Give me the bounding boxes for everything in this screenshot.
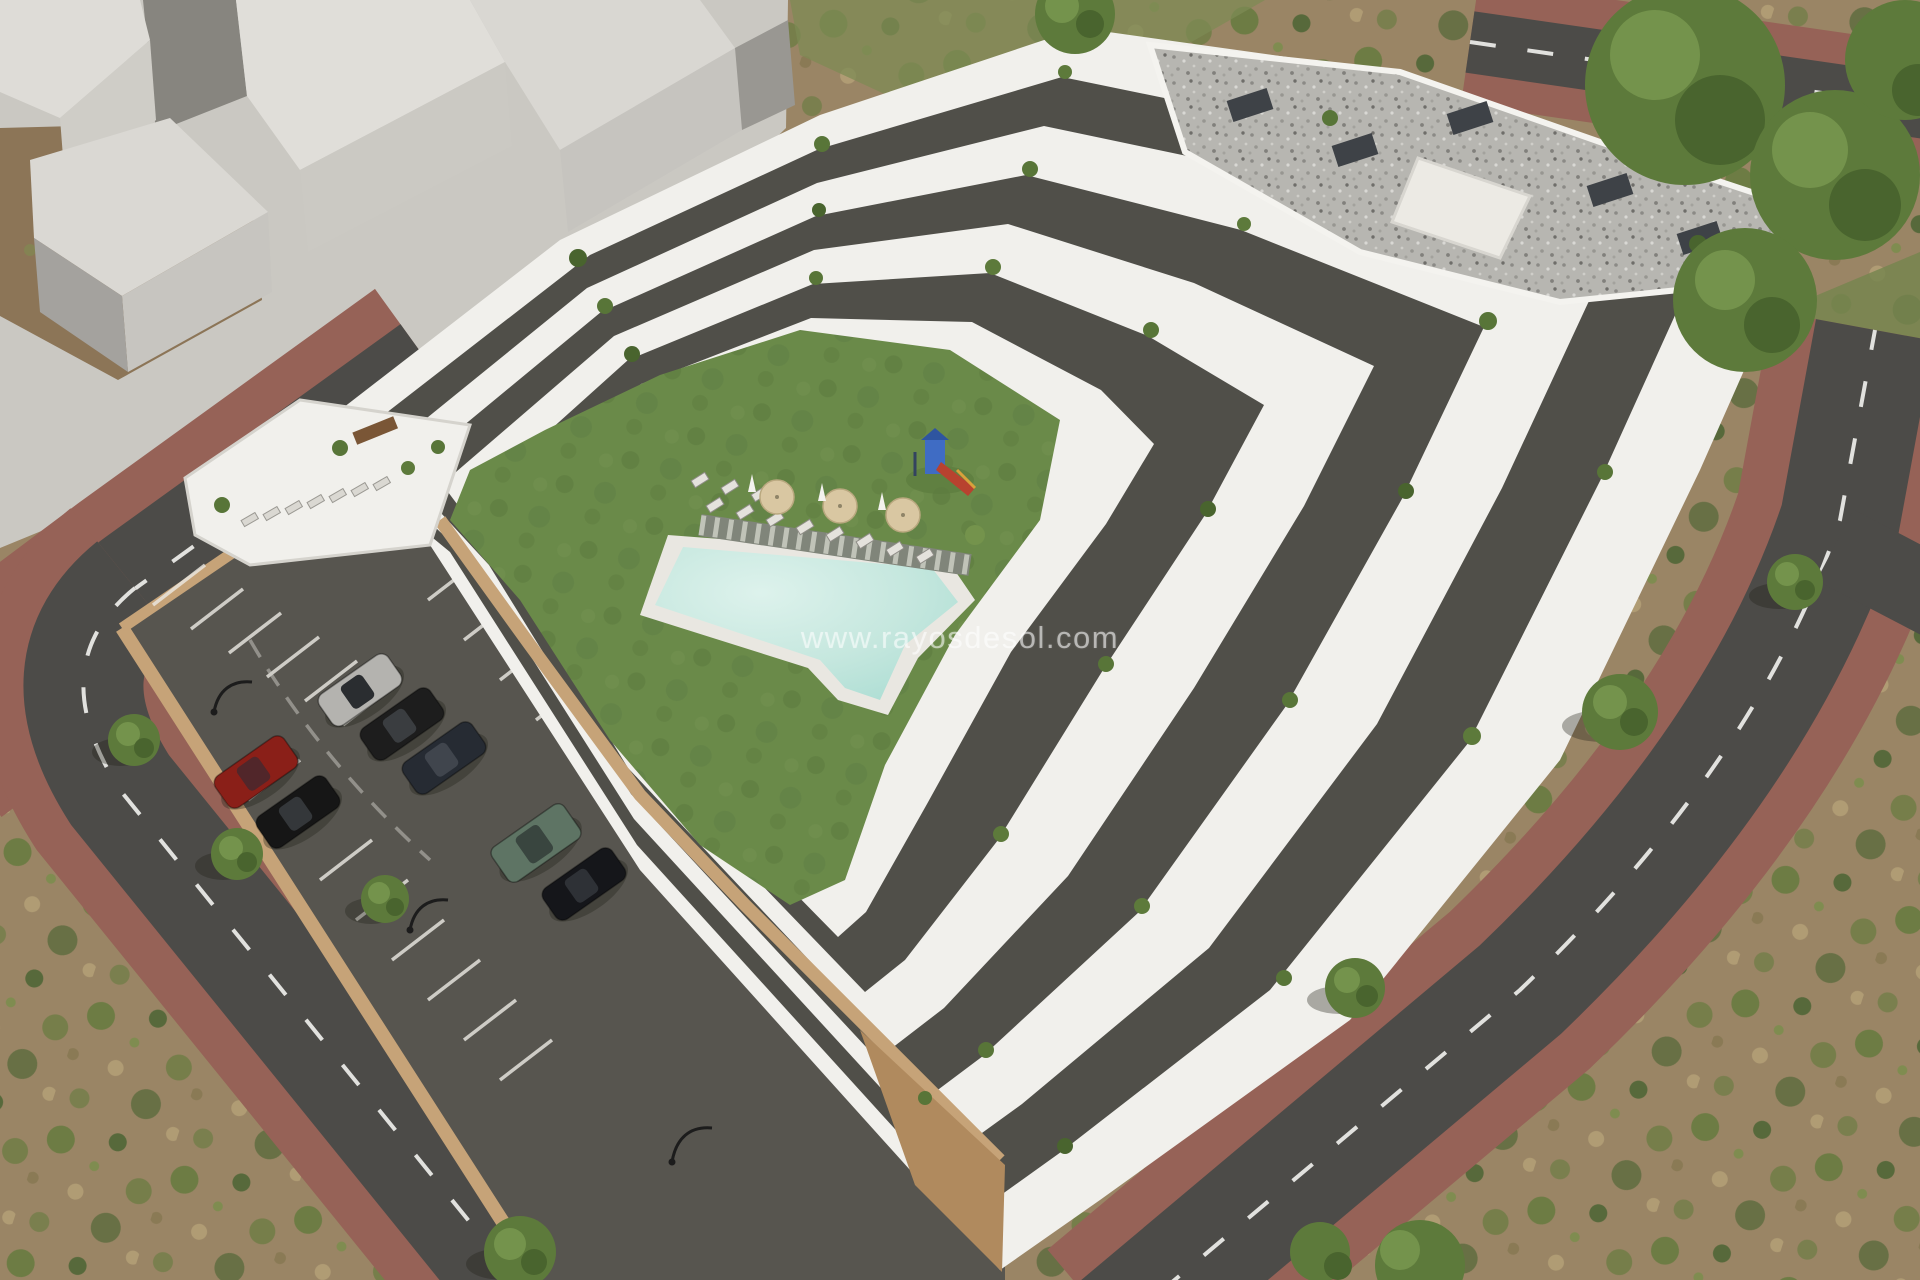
terrace-plant (431, 440, 445, 454)
terrace-plant (214, 497, 230, 513)
watermark-text: www.rayosdesol.com (0, 620, 1920, 656)
architectural-render: www.rayosdesol.com (0, 0, 1920, 1280)
road-branch-east (1835, 545, 1920, 605)
palm-tree (965, 525, 985, 545)
